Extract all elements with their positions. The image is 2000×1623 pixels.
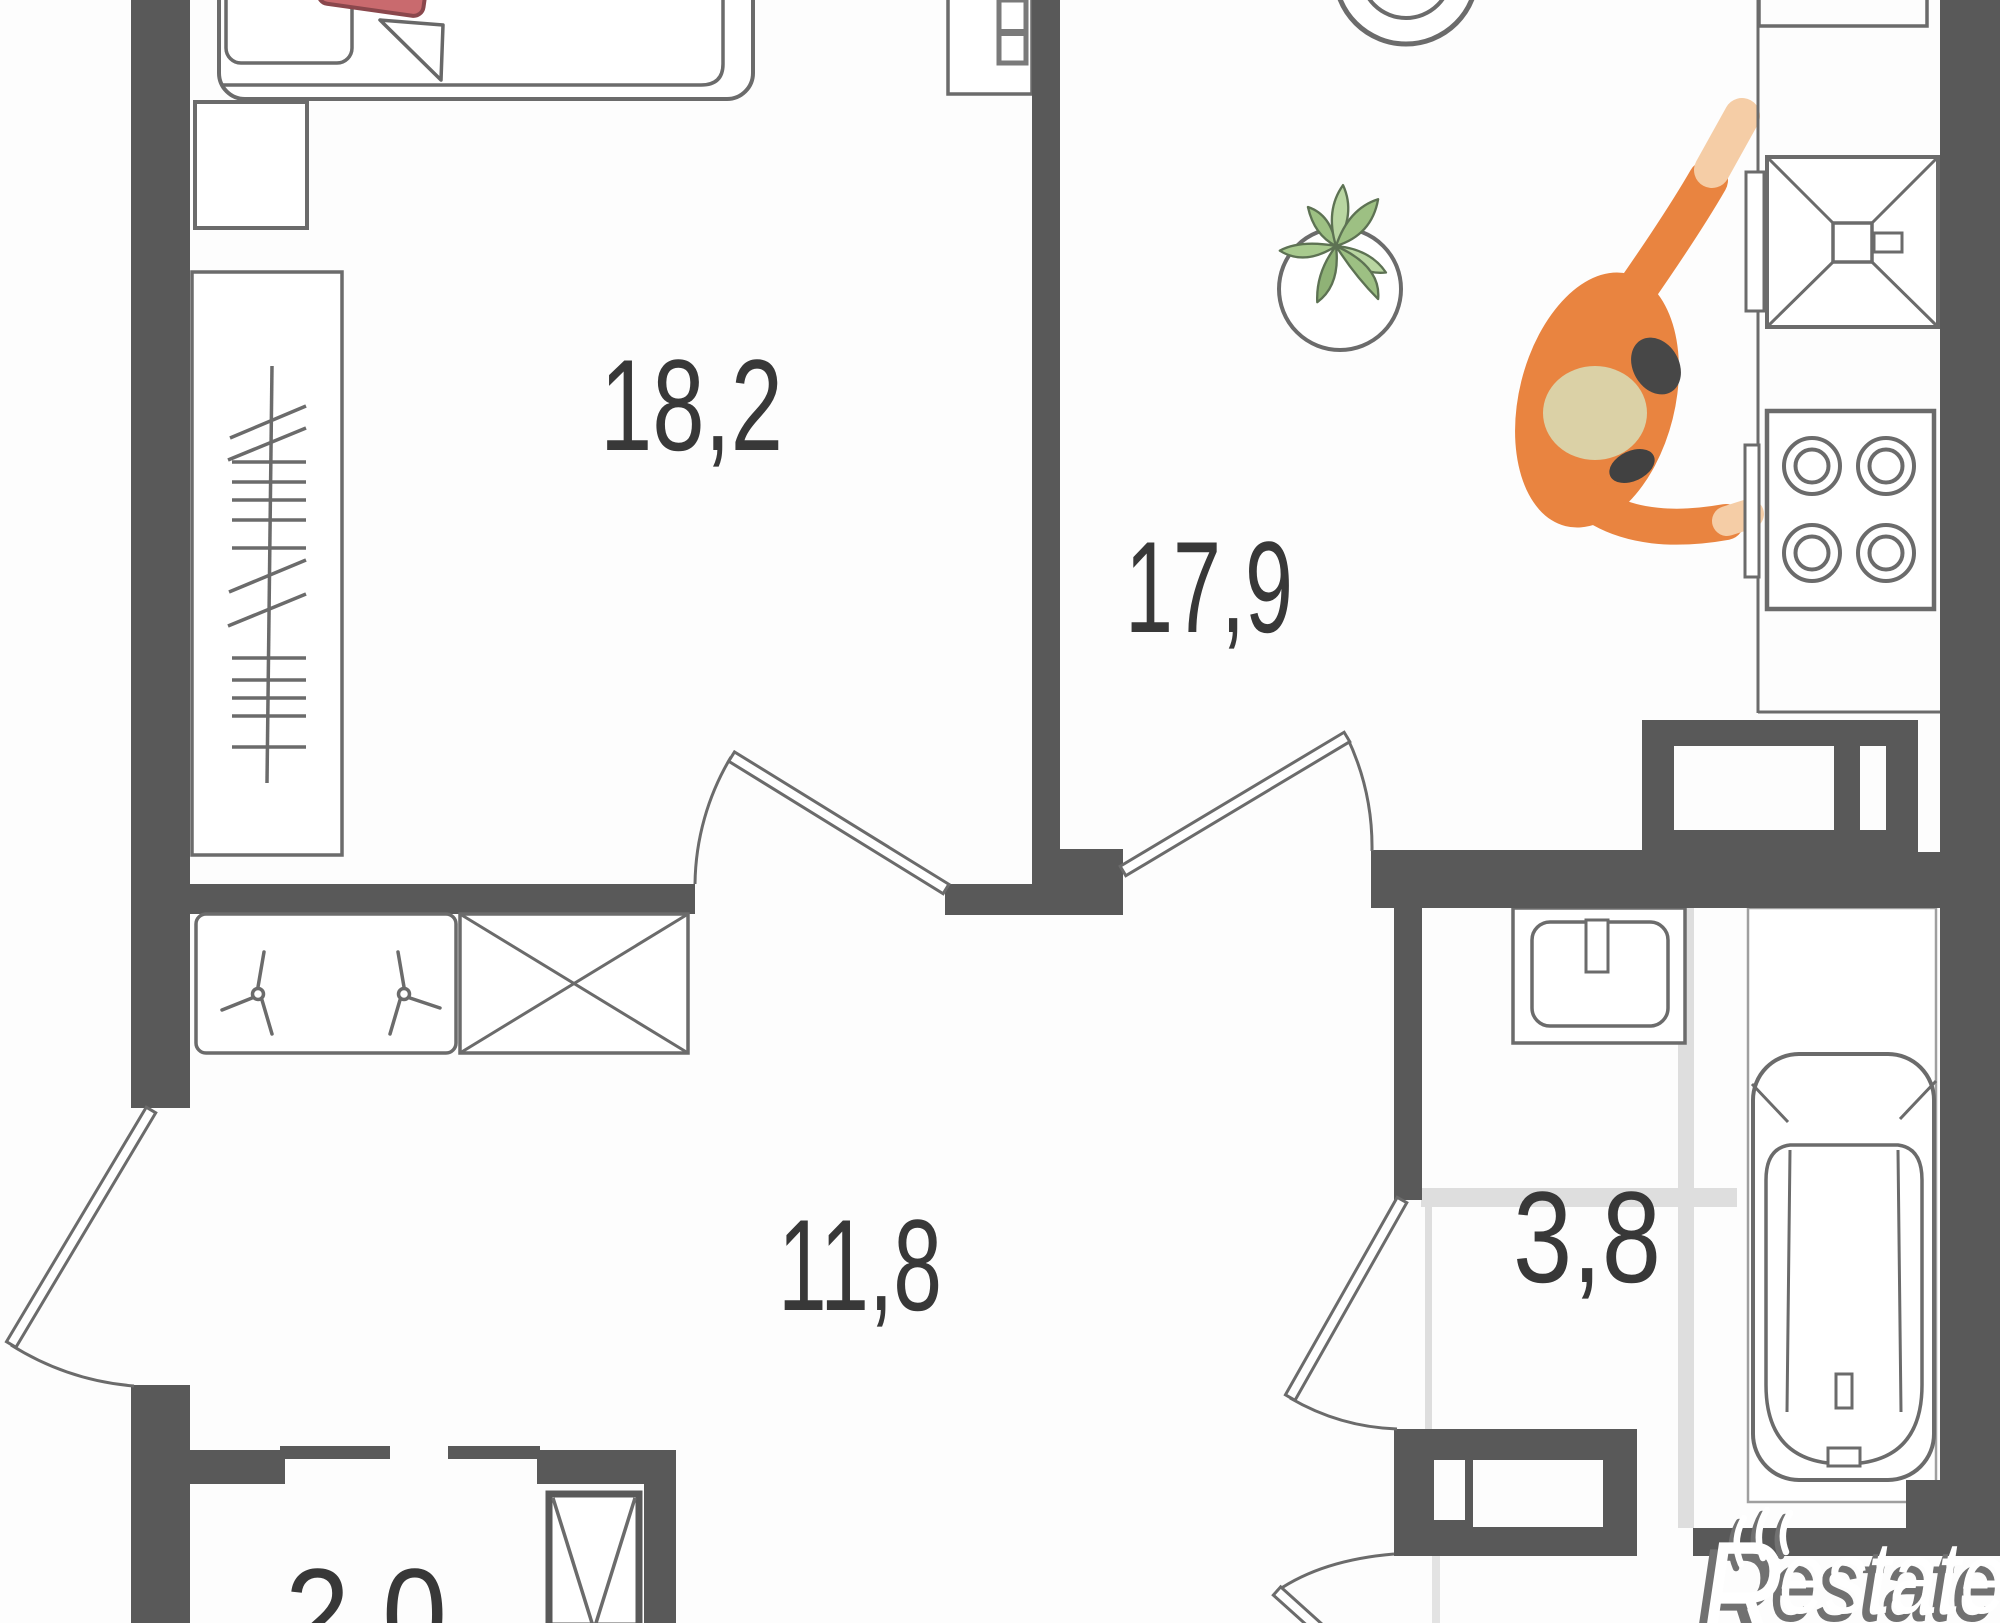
svg-text:3,8: 3,8 [1513, 1164, 1661, 1310]
svg-text:2,0: 2,0 [285, 1541, 447, 1623]
svg-text:11,8: 11,8 [778, 1192, 942, 1338]
svg-text:18,2: 18,2 [600, 332, 783, 478]
svg-text:17,9: 17,9 [1125, 514, 1293, 660]
svg-text:estate: estate [1779, 1520, 2000, 1623]
